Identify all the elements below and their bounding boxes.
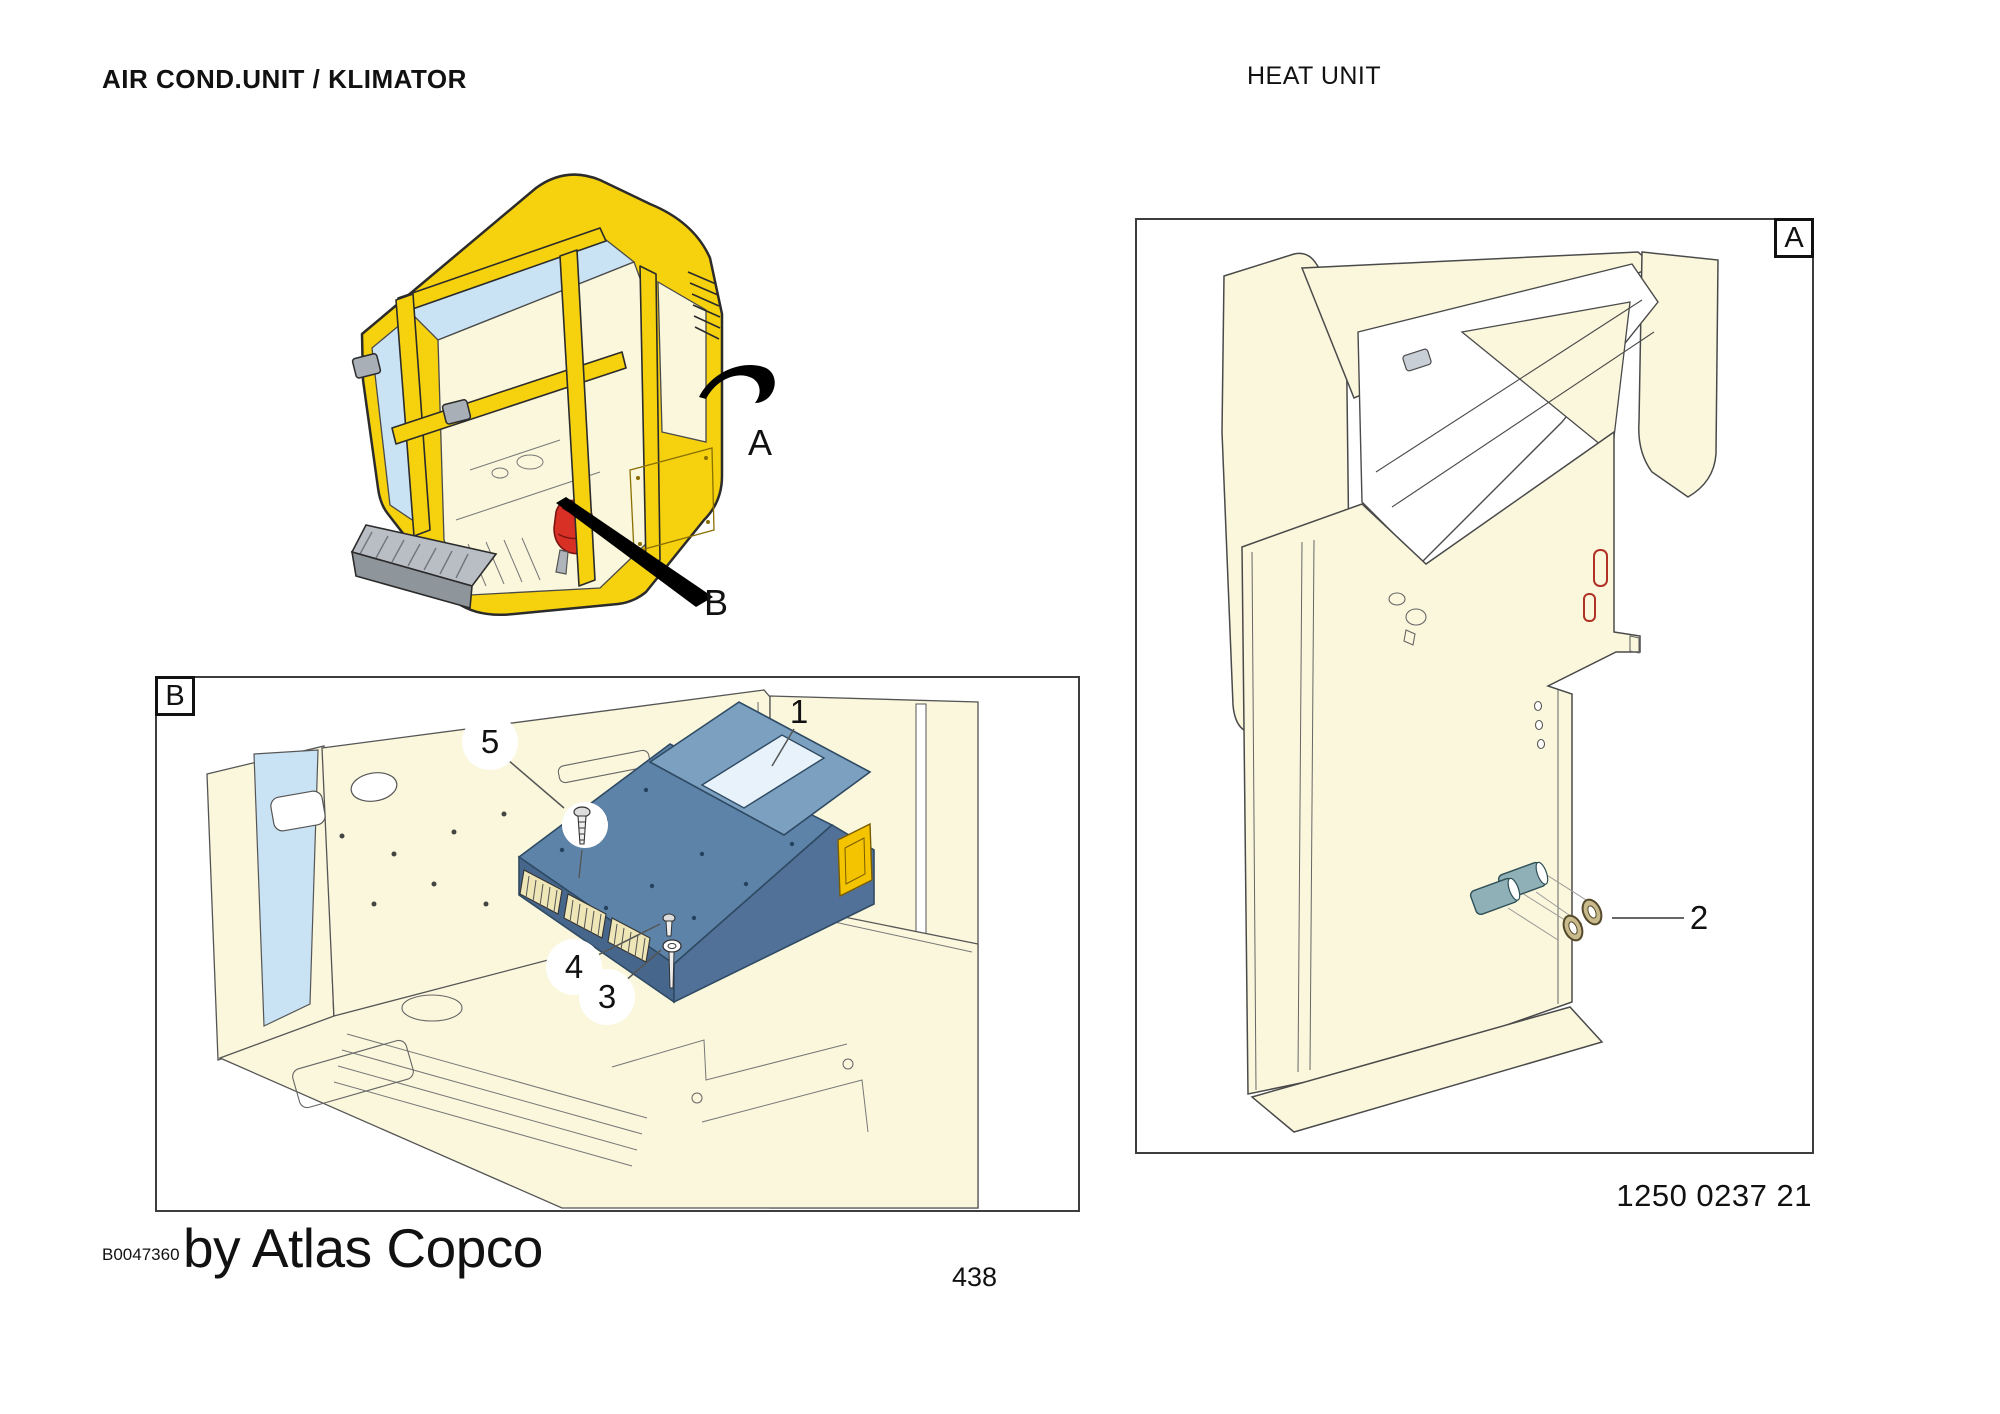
brand-credit: by Atlas Copco bbox=[183, 1216, 543, 1280]
callout-3: 3 bbox=[585, 975, 629, 1019]
view-a-box-label: A bbox=[1774, 218, 1814, 258]
callout-2: 2 bbox=[1677, 896, 1721, 940]
document-number: B0047360 bbox=[102, 1245, 180, 1265]
view-b-ref: B bbox=[694, 581, 738, 625]
detail-view-a: A bbox=[1135, 218, 1814, 1154]
detail-b-drawing bbox=[157, 678, 1078, 1210]
detail-a-drawing bbox=[1137, 220, 1812, 1152]
detail-view-b: B bbox=[155, 676, 1080, 1212]
page-title: AIR COND.UNIT / KLIMATOR bbox=[102, 64, 467, 95]
page-number: 438 bbox=[952, 1262, 997, 1293]
view-a-ref: A bbox=[738, 421, 782, 465]
figure-part-number: 1250 0237 21 bbox=[1616, 1178, 1812, 1214]
view-b-box-label: B bbox=[155, 676, 195, 716]
catalog-page: AIR COND.UNIT / KLIMATOR HEAT UNIT bbox=[0, 0, 2000, 1414]
callout-1: 1 bbox=[777, 690, 821, 734]
section-title: HEAT UNIT bbox=[1247, 62, 1381, 91]
callout-5: 5 bbox=[468, 720, 512, 764]
